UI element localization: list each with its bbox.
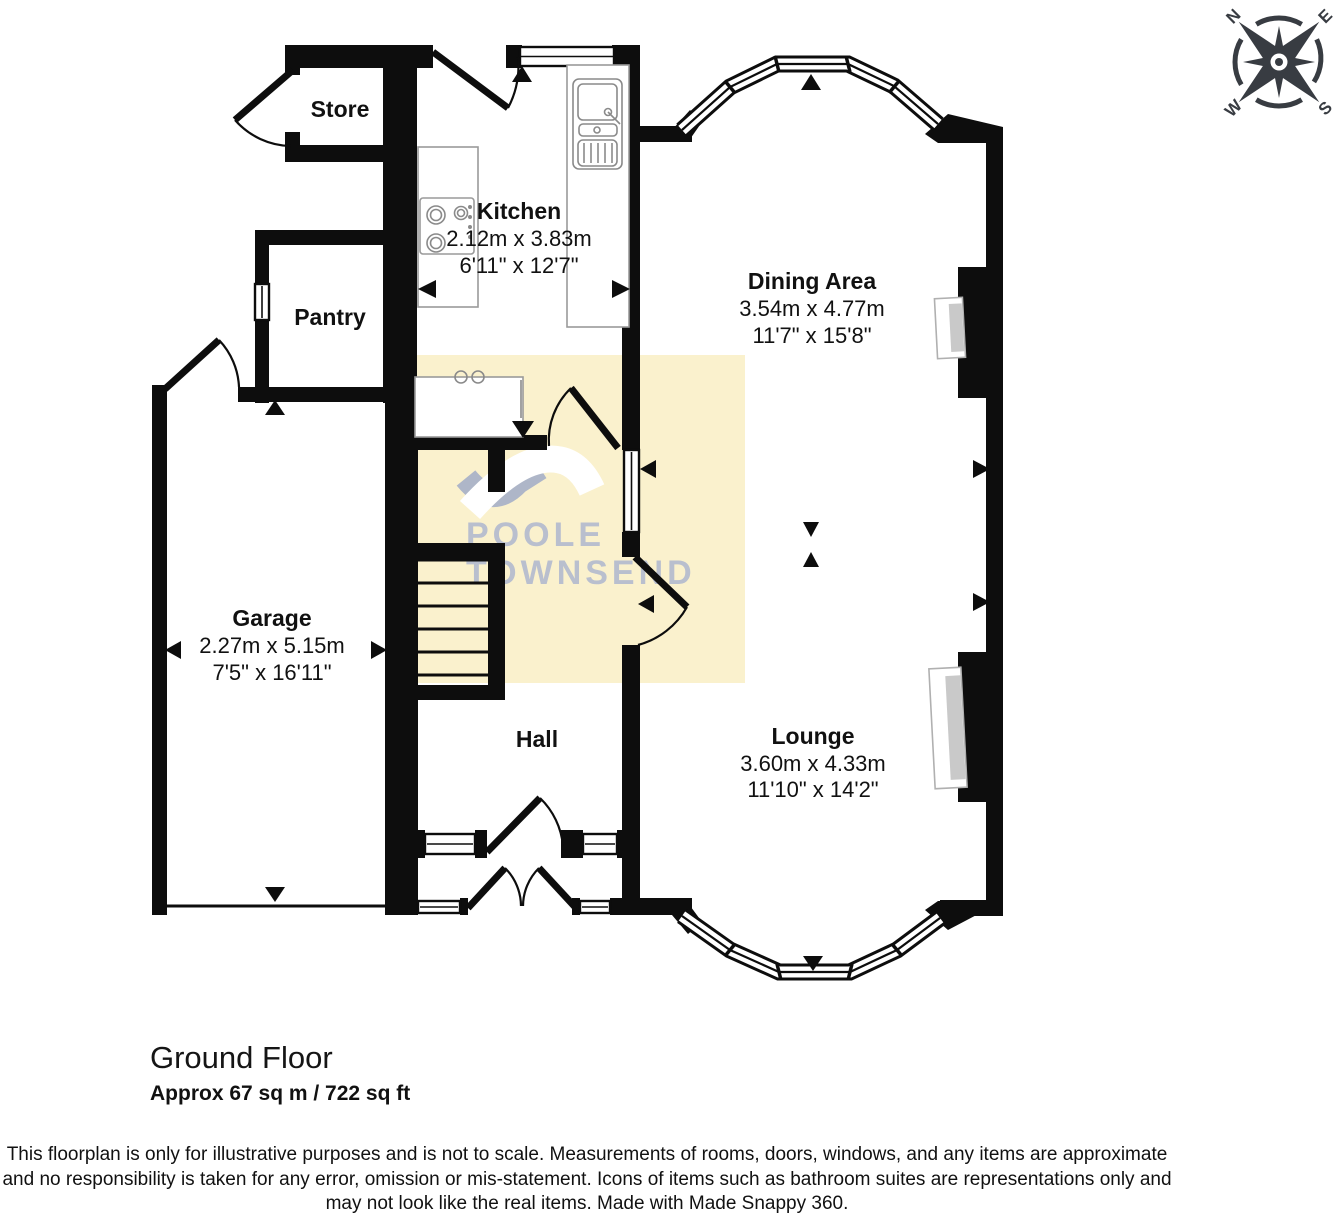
- fireplace-dining-icon: [934, 297, 965, 358]
- room-label-pantry: Pantry: [294, 304, 366, 330]
- wall-segment: [405, 830, 425, 858]
- room-dim-dining-metric: 3.54m x 4.77m: [739, 296, 885, 321]
- wall-segment: [152, 385, 167, 915]
- room-label-hall: Hall: [516, 726, 558, 752]
- wall-segment: [610, 898, 640, 915]
- room-dim-dining-imperial: 11'7" x 15'8": [752, 323, 871, 348]
- room-label-store: Store: [311, 96, 370, 122]
- wall-segment: [622, 532, 640, 557]
- room-label-kitchen: Kitchen: [477, 198, 561, 224]
- floor-title: Ground Floor: [150, 1040, 333, 1075]
- wall-segment: [383, 45, 417, 403]
- room-dim-garage-imperial: 7'5" x 16'11": [212, 660, 331, 685]
- disclaimer-line-3: may not look like the real items. Made w…: [326, 1193, 849, 1214]
- floor-area: Approx 67 sq m / 722 sq ft: [150, 1082, 410, 1105]
- room-dim-garage-metric: 2.27m x 5.15m: [199, 633, 345, 658]
- wall-segment: [285, 145, 385, 162]
- wall-segment: [415, 685, 505, 700]
- room-label-dining: Dining Area: [748, 268, 876, 294]
- room-dim-kitchen-imperial: 6'11" x 12'7": [459, 253, 578, 278]
- disclaimer-line-2: and no responsibility is taken for any e…: [2, 1169, 1171, 1190]
- disclaimer-line-1: This floorplan is only for illustrative …: [7, 1144, 1168, 1165]
- floorplan-canvas: POOLE TOWNSEND: [0, 0, 1344, 1216]
- wall-segment: [488, 450, 505, 492]
- wall-segment: [255, 230, 269, 284]
- wall-segment: [475, 830, 487, 858]
- fireplace-lounge-icon: [929, 667, 967, 789]
- room-label-garage: Garage: [232, 605, 311, 631]
- room-label-lounge: Lounge: [771, 723, 854, 749]
- wall-segment: [986, 128, 1003, 915]
- wall-segment: [238, 387, 403, 402]
- wall-segment: [561, 830, 583, 858]
- wall-segment: [617, 830, 640, 858]
- room-dim-lounge-imperial: 11'10" x 14'2": [747, 777, 878, 802]
- wall-segment: [405, 898, 418, 915]
- room-dim-lounge-metric: 3.60m x 4.33m: [740, 751, 886, 776]
- floorplan-page: POOLE TOWNSEND: [0, 0, 1344, 1216]
- room-dim-kitchen-metric: 2.12m x 3.83m: [446, 226, 592, 251]
- kitchen-unit-lower: [415, 371, 523, 437]
- wall-segment: [488, 543, 505, 700]
- wall-segment: [255, 230, 385, 245]
- wall-segment: [622, 645, 640, 902]
